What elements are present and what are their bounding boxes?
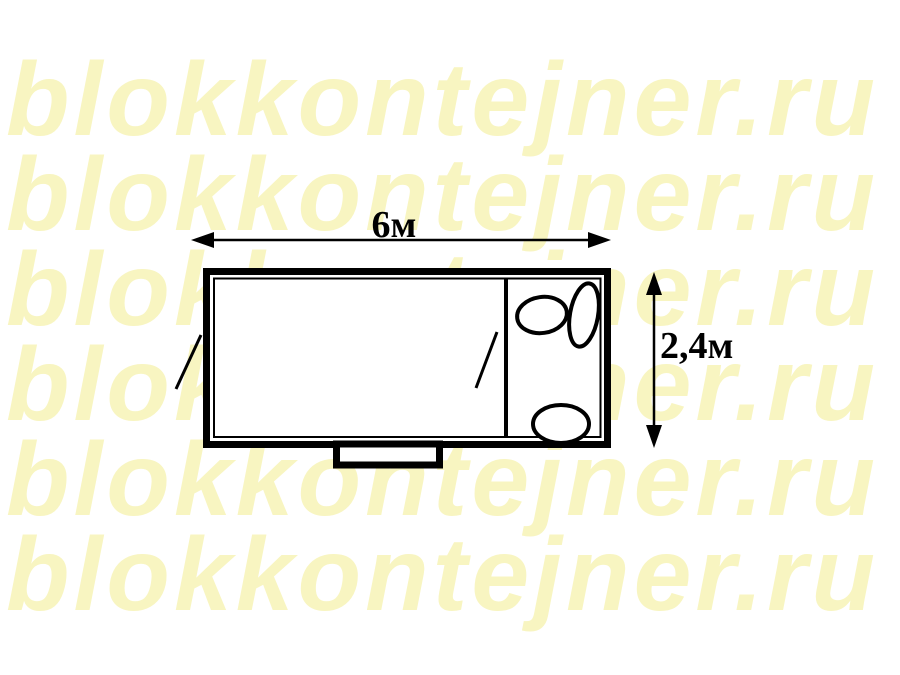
washbasin-icon bbox=[533, 405, 589, 443]
arrow-up-icon bbox=[646, 272, 662, 295]
arrow-down-icon bbox=[646, 425, 662, 448]
entrance-step bbox=[337, 444, 440, 465]
length-dimension: 6м bbox=[191, 204, 611, 248]
arrow-left-icon bbox=[191, 232, 214, 248]
length-dimension-label: 6м bbox=[372, 204, 417, 246]
width-dimension: 2,4м bbox=[646, 272, 733, 448]
width-dimension-label: 2,4м bbox=[660, 325, 733, 367]
floor-plan-diagram: 6м 2,4м bbox=[0, 0, 900, 675]
arrow-right-icon bbox=[588, 232, 611, 248]
entrance-door-swing bbox=[176, 335, 201, 389]
